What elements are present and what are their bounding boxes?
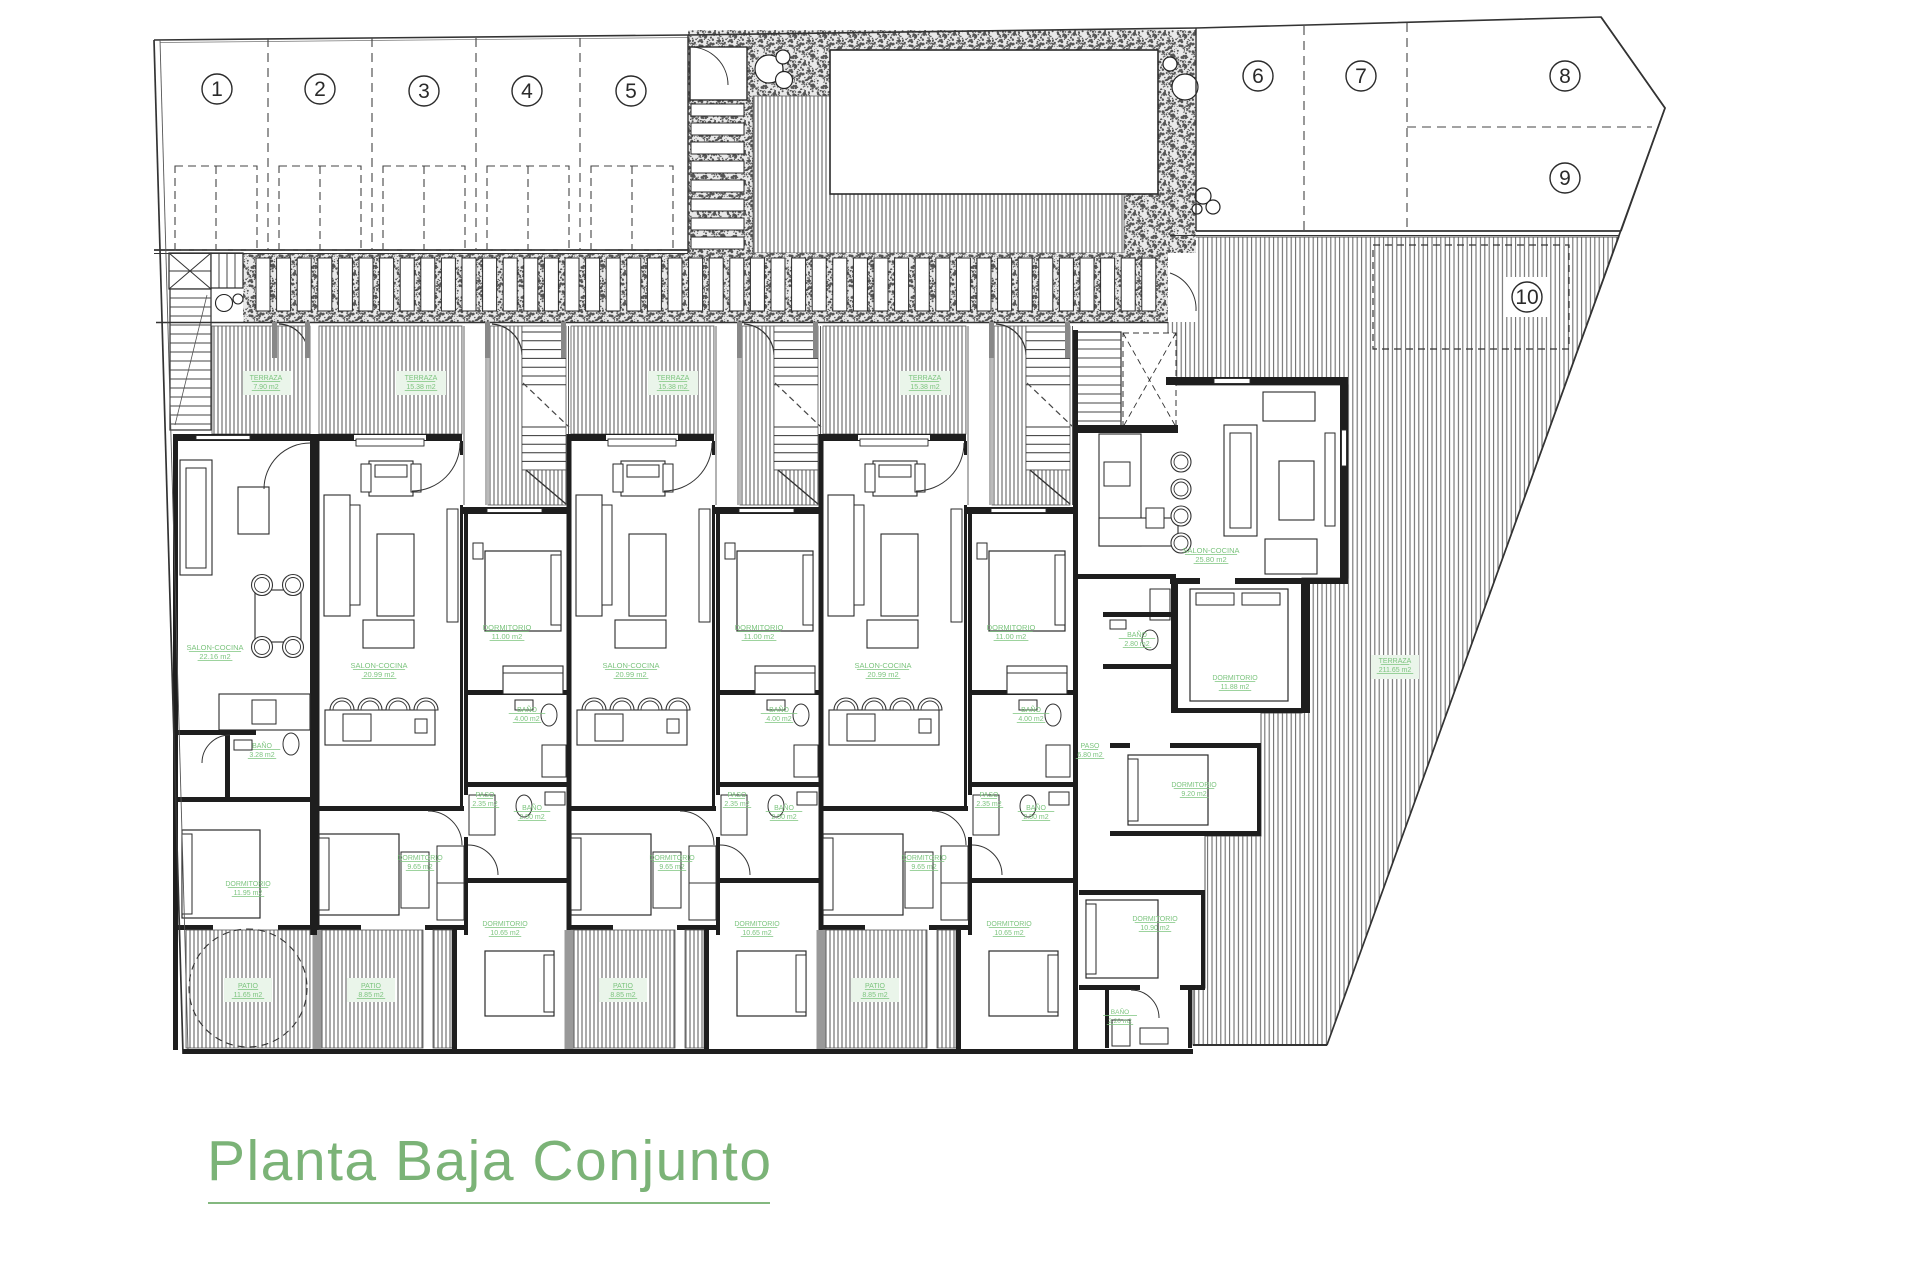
svg-text:DORMITORIO: DORMITORIO: [986, 921, 1032, 928]
svg-text:211.65 m2: 211.65 m2: [1379, 667, 1412, 674]
svg-text:20.99 m2: 20.99 m2: [867, 670, 898, 679]
svg-text:8.85 m2: 8.85 m2: [862, 992, 887, 999]
svg-text:2.50 m2: 2.50 m2: [771, 814, 796, 821]
svg-text:2.35 m2: 2.35 m2: [976, 801, 1001, 808]
svg-text:11.95 m2: 11.95 m2: [234, 890, 263, 897]
svg-text:BAÑO: BAÑO: [1111, 1007, 1129, 1016]
svg-text:7.90 m2: 7.90 m2: [253, 384, 278, 391]
svg-text:6: 6: [1252, 65, 1264, 88]
svg-text:5: 5: [625, 80, 637, 103]
svg-text:11.88 m2: 11.88 m2: [1221, 684, 1250, 691]
svg-text:PASO: PASO: [980, 792, 999, 799]
svg-text:DORMITORIO: DORMITORIO: [225, 881, 271, 888]
svg-text:TERRAZA: TERRAZA: [405, 375, 438, 382]
svg-text:20.99 m2: 20.99 m2: [363, 670, 394, 679]
svg-text:DORMITORIO: DORMITORIO: [734, 921, 780, 928]
svg-text:SALON-COCINA: SALON-COCINA: [1182, 546, 1239, 555]
svg-text:1: 1: [211, 78, 223, 101]
svg-text:2.50 m2: 2.50 m2: [1023, 814, 1048, 821]
svg-text:4: 4: [521, 80, 533, 103]
svg-text:SALON-COCINA: SALON-COCINA: [854, 661, 911, 670]
svg-text:8.85 m2: 8.85 m2: [358, 992, 383, 999]
svg-text:DORMITORIO: DORMITORIO: [482, 921, 528, 928]
svg-text:10.65 m2: 10.65 m2: [994, 930, 1023, 937]
svg-text:10.65 m2: 10.65 m2: [490, 930, 519, 937]
svg-text:15.38 m2: 15.38 m2: [658, 384, 687, 391]
svg-text:BAÑO: BAÑO: [522, 803, 542, 812]
svg-text:PATIO: PATIO: [865, 983, 886, 990]
svg-text:DORMITORIO: DORMITORIO: [1171, 782, 1217, 789]
svg-text:DORMITORIO: DORMITORIO: [483, 623, 532, 632]
svg-text:4.00 m2: 4.00 m2: [1018, 716, 1043, 723]
svg-text:9.20 m2: 9.20 m2: [1181, 791, 1206, 798]
svg-text:DORMITORIO: DORMITORIO: [649, 855, 695, 862]
svg-text:8.85 m2: 8.85 m2: [610, 992, 635, 999]
svg-text:25.80 m2: 25.80 m2: [1195, 555, 1226, 564]
svg-text:DORMITORIO: DORMITORIO: [1212, 675, 1258, 682]
svg-text:TERRAZA: TERRAZA: [1379, 658, 1412, 665]
svg-text:2.50 m2: 2.50 m2: [519, 814, 544, 821]
svg-text:20.99 m2: 20.99 m2: [615, 670, 646, 679]
svg-text:11.00 m2: 11.00 m2: [492, 632, 523, 641]
svg-text:10: 10: [1515, 286, 1538, 309]
svg-text:DORMITORIO: DORMITORIO: [397, 855, 443, 862]
svg-text:SALON-COCINA: SALON-COCINA: [186, 643, 243, 652]
svg-text:PATIO: PATIO: [613, 983, 634, 990]
svg-text:DORMITORIO: DORMITORIO: [987, 623, 1036, 632]
svg-text:BAÑO: BAÑO: [1127, 630, 1147, 639]
svg-text:4.00 m2: 4.00 m2: [514, 716, 539, 723]
svg-text:9.65 m2: 9.65 m2: [407, 864, 432, 871]
svg-text:PASO: PASO: [476, 792, 495, 799]
svg-text:2.20 m2: 2.20 m2: [1108, 1018, 1132, 1025]
svg-text:BAÑO: BAÑO: [252, 741, 272, 750]
svg-text:TERRAZA: TERRAZA: [250, 375, 283, 382]
svg-text:10.90 m2: 10.90 m2: [1140, 925, 1169, 932]
svg-text:SALON-COCINA: SALON-COCINA: [602, 661, 659, 670]
svg-text:11.00 m2: 11.00 m2: [996, 632, 1027, 641]
svg-text:9: 9: [1559, 167, 1571, 190]
svg-text:11.65 m2: 11.65 m2: [234, 992, 263, 999]
svg-text:DORMITORIO: DORMITORIO: [1132, 916, 1178, 923]
svg-text:4.00 m2: 4.00 m2: [766, 716, 791, 723]
svg-text:SALON-COCINA: SALON-COCINA: [350, 661, 407, 670]
svg-text:9.65 m2: 9.65 m2: [911, 864, 936, 871]
svg-text:8: 8: [1559, 65, 1571, 88]
svg-text:11.00 m2: 11.00 m2: [744, 632, 775, 641]
svg-text:2.35 m2: 2.35 m2: [472, 801, 497, 808]
svg-text:10.65 m2: 10.65 m2: [742, 930, 771, 937]
svg-text:2.35 m2: 2.35 m2: [724, 801, 749, 808]
svg-text:BAÑO: BAÑO: [769, 705, 789, 714]
svg-text:BAÑO: BAÑO: [1021, 705, 1041, 714]
svg-text:BAÑO: BAÑO: [517, 705, 537, 714]
svg-text:TERRAZA: TERRAZA: [909, 375, 942, 382]
svg-text:DORMITORIO: DORMITORIO: [735, 623, 784, 632]
svg-text:BAÑO: BAÑO: [774, 803, 794, 812]
svg-text:15.38 m2: 15.38 m2: [910, 384, 939, 391]
svg-text:Planta Baja Conjunto: Planta Baja Conjunto: [207, 1129, 773, 1193]
svg-text:2: 2: [314, 78, 326, 101]
svg-text:PASO: PASO: [728, 792, 747, 799]
svg-text:DORMITORIO: DORMITORIO: [901, 855, 947, 862]
svg-text:PATIO: PATIO: [238, 983, 259, 990]
svg-text:15.38 m2: 15.38 m2: [406, 384, 435, 391]
svg-text:2.80 m2: 2.80 m2: [1124, 641, 1149, 648]
svg-text:PASO: PASO: [1081, 743, 1100, 750]
svg-text:TERRAZA: TERRAZA: [657, 375, 690, 382]
svg-text:7: 7: [1355, 65, 1367, 88]
svg-text:22.16 m2: 22.16 m2: [199, 652, 230, 661]
svg-text:3: 3: [418, 80, 430, 103]
svg-text:6.80 m2: 6.80 m2: [1077, 752, 1102, 759]
svg-text:9.65 m2: 9.65 m2: [659, 864, 684, 871]
svg-text:BAÑO: BAÑO: [1026, 803, 1046, 812]
svg-text:3.28 m2: 3.28 m2: [249, 752, 274, 759]
svg-text:PATIO: PATIO: [361, 983, 382, 990]
